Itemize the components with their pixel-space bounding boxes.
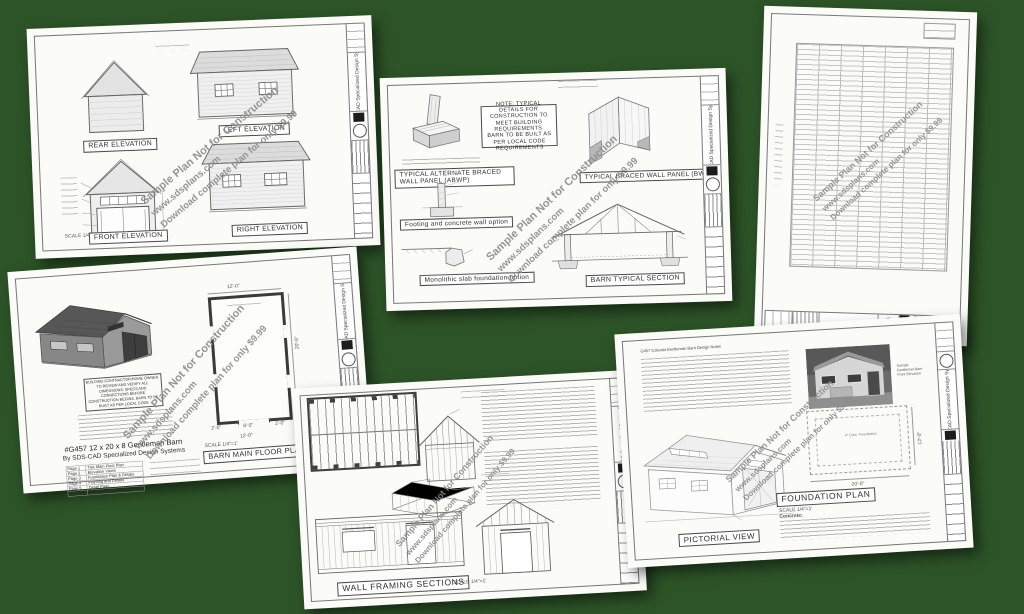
dim-top: 12'-0" <box>227 283 240 290</box>
design-notes-list <box>641 350 792 413</box>
framing-notes-1 <box>481 386 598 442</box>
photo-caption: Sample Gentleman Barn Front Elevation <box>897 361 938 383</box>
foundation-dim-bottom: 20'-0" <box>852 481 865 488</box>
sheet-wall-framing: WALL FRAMING SECTIONS SCALE 1/4"=1' Samp… <box>292 370 647 610</box>
logo-square <box>945 431 957 441</box>
logo-square <box>353 112 364 121</box>
title-block-header <box>332 255 351 284</box>
logo-circle <box>704 176 722 194</box>
annotation-leaders <box>61 177 79 218</box>
window-opening <box>283 325 288 338</box>
window-opening <box>287 375 292 388</box>
plan-collage: REAR ELEVATION LEFT ELEVATION <box>0 0 1024 614</box>
logo-square <box>341 340 353 350</box>
dim-seg-left: 2'-0" <box>211 425 221 432</box>
sheet-foundation: G457 Colonial Gentleman Barn Design Note… <box>614 314 973 568</box>
title-block-hatch <box>942 440 961 475</box>
rear-elevation-drawing <box>78 54 153 139</box>
logo-square <box>706 166 717 175</box>
roof-framing-plan <box>307 392 421 472</box>
title-block-header <box>935 322 954 352</box>
logo-circle <box>339 350 357 369</box>
title-block-hatch <box>704 194 722 228</box>
title-block-rows <box>353 173 373 238</box>
dim-seg-right: 2'-0" <box>275 420 285 427</box>
sheet-materials-list: Sample Plan Not for Construction www.sds… <box>754 6 977 347</box>
side-note <box>150 459 201 481</box>
slab-detail-drawing <box>399 237 475 273</box>
title-block-brand: SDS-CAD Specialized Design Systems <box>938 370 959 431</box>
title-block-brand: SDS-CAD Specialized Design Systems <box>702 105 721 165</box>
logo-circle <box>351 122 369 141</box>
sheet-elevations: REAR ELEVATION LEFT ELEVATION <box>27 15 381 259</box>
foundation-dim-right: 12'-0" <box>917 432 924 445</box>
dim-seg-mid: 8'-0" <box>243 423 253 430</box>
title-block-hatch <box>351 140 369 174</box>
title-block-brand: SDS-CAD Specialized Design Systems <box>334 283 355 341</box>
gable-wall-framing-drawing <box>470 492 561 581</box>
title-block-rows <box>944 474 965 541</box>
title-block-brand: SDS-CAD Specialized Design Systems <box>348 52 367 111</box>
barn-3d-render <box>31 287 162 378</box>
revision-box <box>923 23 955 40</box>
title-block-rows <box>705 227 724 293</box>
page-index-table: Page 1Title Main Floor Plan Page 2Elevat… <box>66 461 144 494</box>
title-block-header <box>701 76 719 106</box>
dim-bottom: 12'-0" <box>240 433 253 440</box>
abwp-detail-drawing <box>402 91 469 158</box>
title-block-header <box>347 23 365 52</box>
sheet-details: TYPICAL ALTERNATE BRACED WALL PANEL (ABW… <box>380 68 733 311</box>
code-note-box: NOTE: TYPICAL DETAILS FOR CONSTRUCTION T… <box>480 104 557 148</box>
logo-circle <box>937 352 955 371</box>
dim-right: 20'-0" <box>294 336 301 349</box>
